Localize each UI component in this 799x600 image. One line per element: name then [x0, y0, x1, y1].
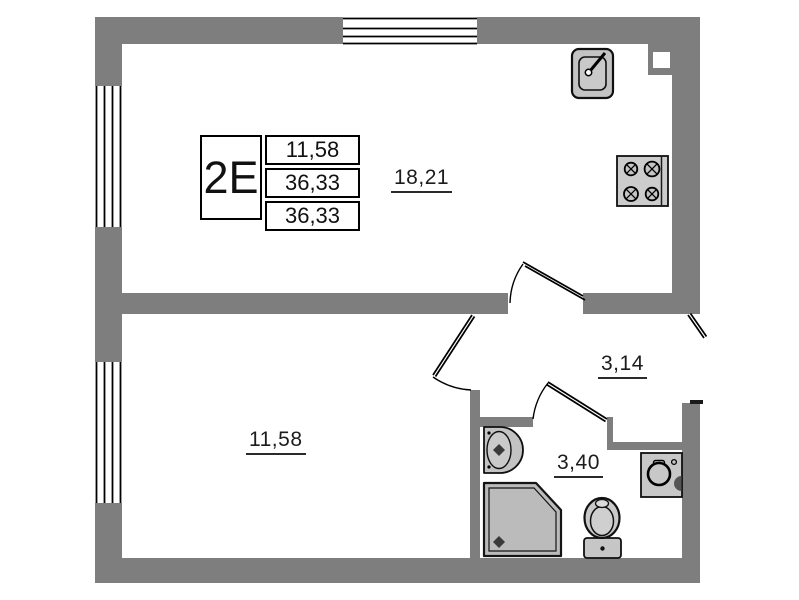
- unit-area-row-1: 11,58: [265, 135, 360, 165]
- door-entrance: [688, 314, 707, 339]
- wall-top-left: [95, 17, 343, 44]
- shower-icon: [484, 483, 561, 556]
- unit-area-values: 11,58 36,33 36,33: [265, 135, 360, 220]
- wall-top-right: [477, 17, 700, 44]
- wall-divider-left: [122, 293, 508, 314]
- area-label-kitchen-living: 18,21: [391, 166, 452, 193]
- unit-area-row-3: 36,33: [265, 201, 360, 231]
- unit-info-card: 2E 11,58 36,33 36,33: [200, 135, 360, 220]
- wall-left-upper: [95, 17, 122, 87]
- wall-bathroom-step: [607, 417, 613, 445]
- toilet-icon: [584, 498, 621, 558]
- kitchen-sink-icon: [572, 49, 613, 98]
- door-bedroom: [433, 315, 475, 390]
- window-livingroom-left: [95, 86, 122, 227]
- floorplan: 18,21 11,58 3,14 3,40 2E 11,58 36,33 36,…: [0, 0, 799, 600]
- vent-shaft-opening: [653, 52, 670, 68]
- floorplan-drawing: [0, 0, 799, 600]
- washing-machine-icon: [641, 453, 682, 497]
- wall-bathroom-left: [470, 390, 480, 558]
- stove-icon: [617, 156, 668, 206]
- window-kitchen: [343, 17, 477, 45]
- wall-bottom: [95, 558, 700, 583]
- door-living-room: [510, 262, 585, 303]
- window-kitchen-glass: [343, 17, 477, 45]
- wall-bathroom-top-left: [480, 417, 533, 427]
- door-bathroom: [533, 382, 607, 422]
- wall-right-lower: [682, 403, 700, 558]
- walls: [95, 17, 703, 583]
- wall-left-middle: [95, 227, 122, 362]
- area-label-bedroom: 11,58: [246, 428, 306, 455]
- entry-threshold-mark: [690, 400, 703, 404]
- area-label-bathroom: 3,40: [554, 451, 603, 478]
- window-bedroom-left: [95, 362, 122, 503]
- unit-area-row-2: 36,33: [265, 168, 360, 198]
- area-label-hallway: 3,14: [598, 352, 647, 379]
- unit-type: 2E: [200, 135, 262, 220]
- wall-bathroom-top-right: [607, 442, 682, 450]
- window-livingroom-glass: [95, 86, 122, 227]
- wall-divider-right: [583, 293, 672, 314]
- window-bedroom-glass: [95, 362, 122, 503]
- bathroom-sink-icon: [484, 427, 523, 473]
